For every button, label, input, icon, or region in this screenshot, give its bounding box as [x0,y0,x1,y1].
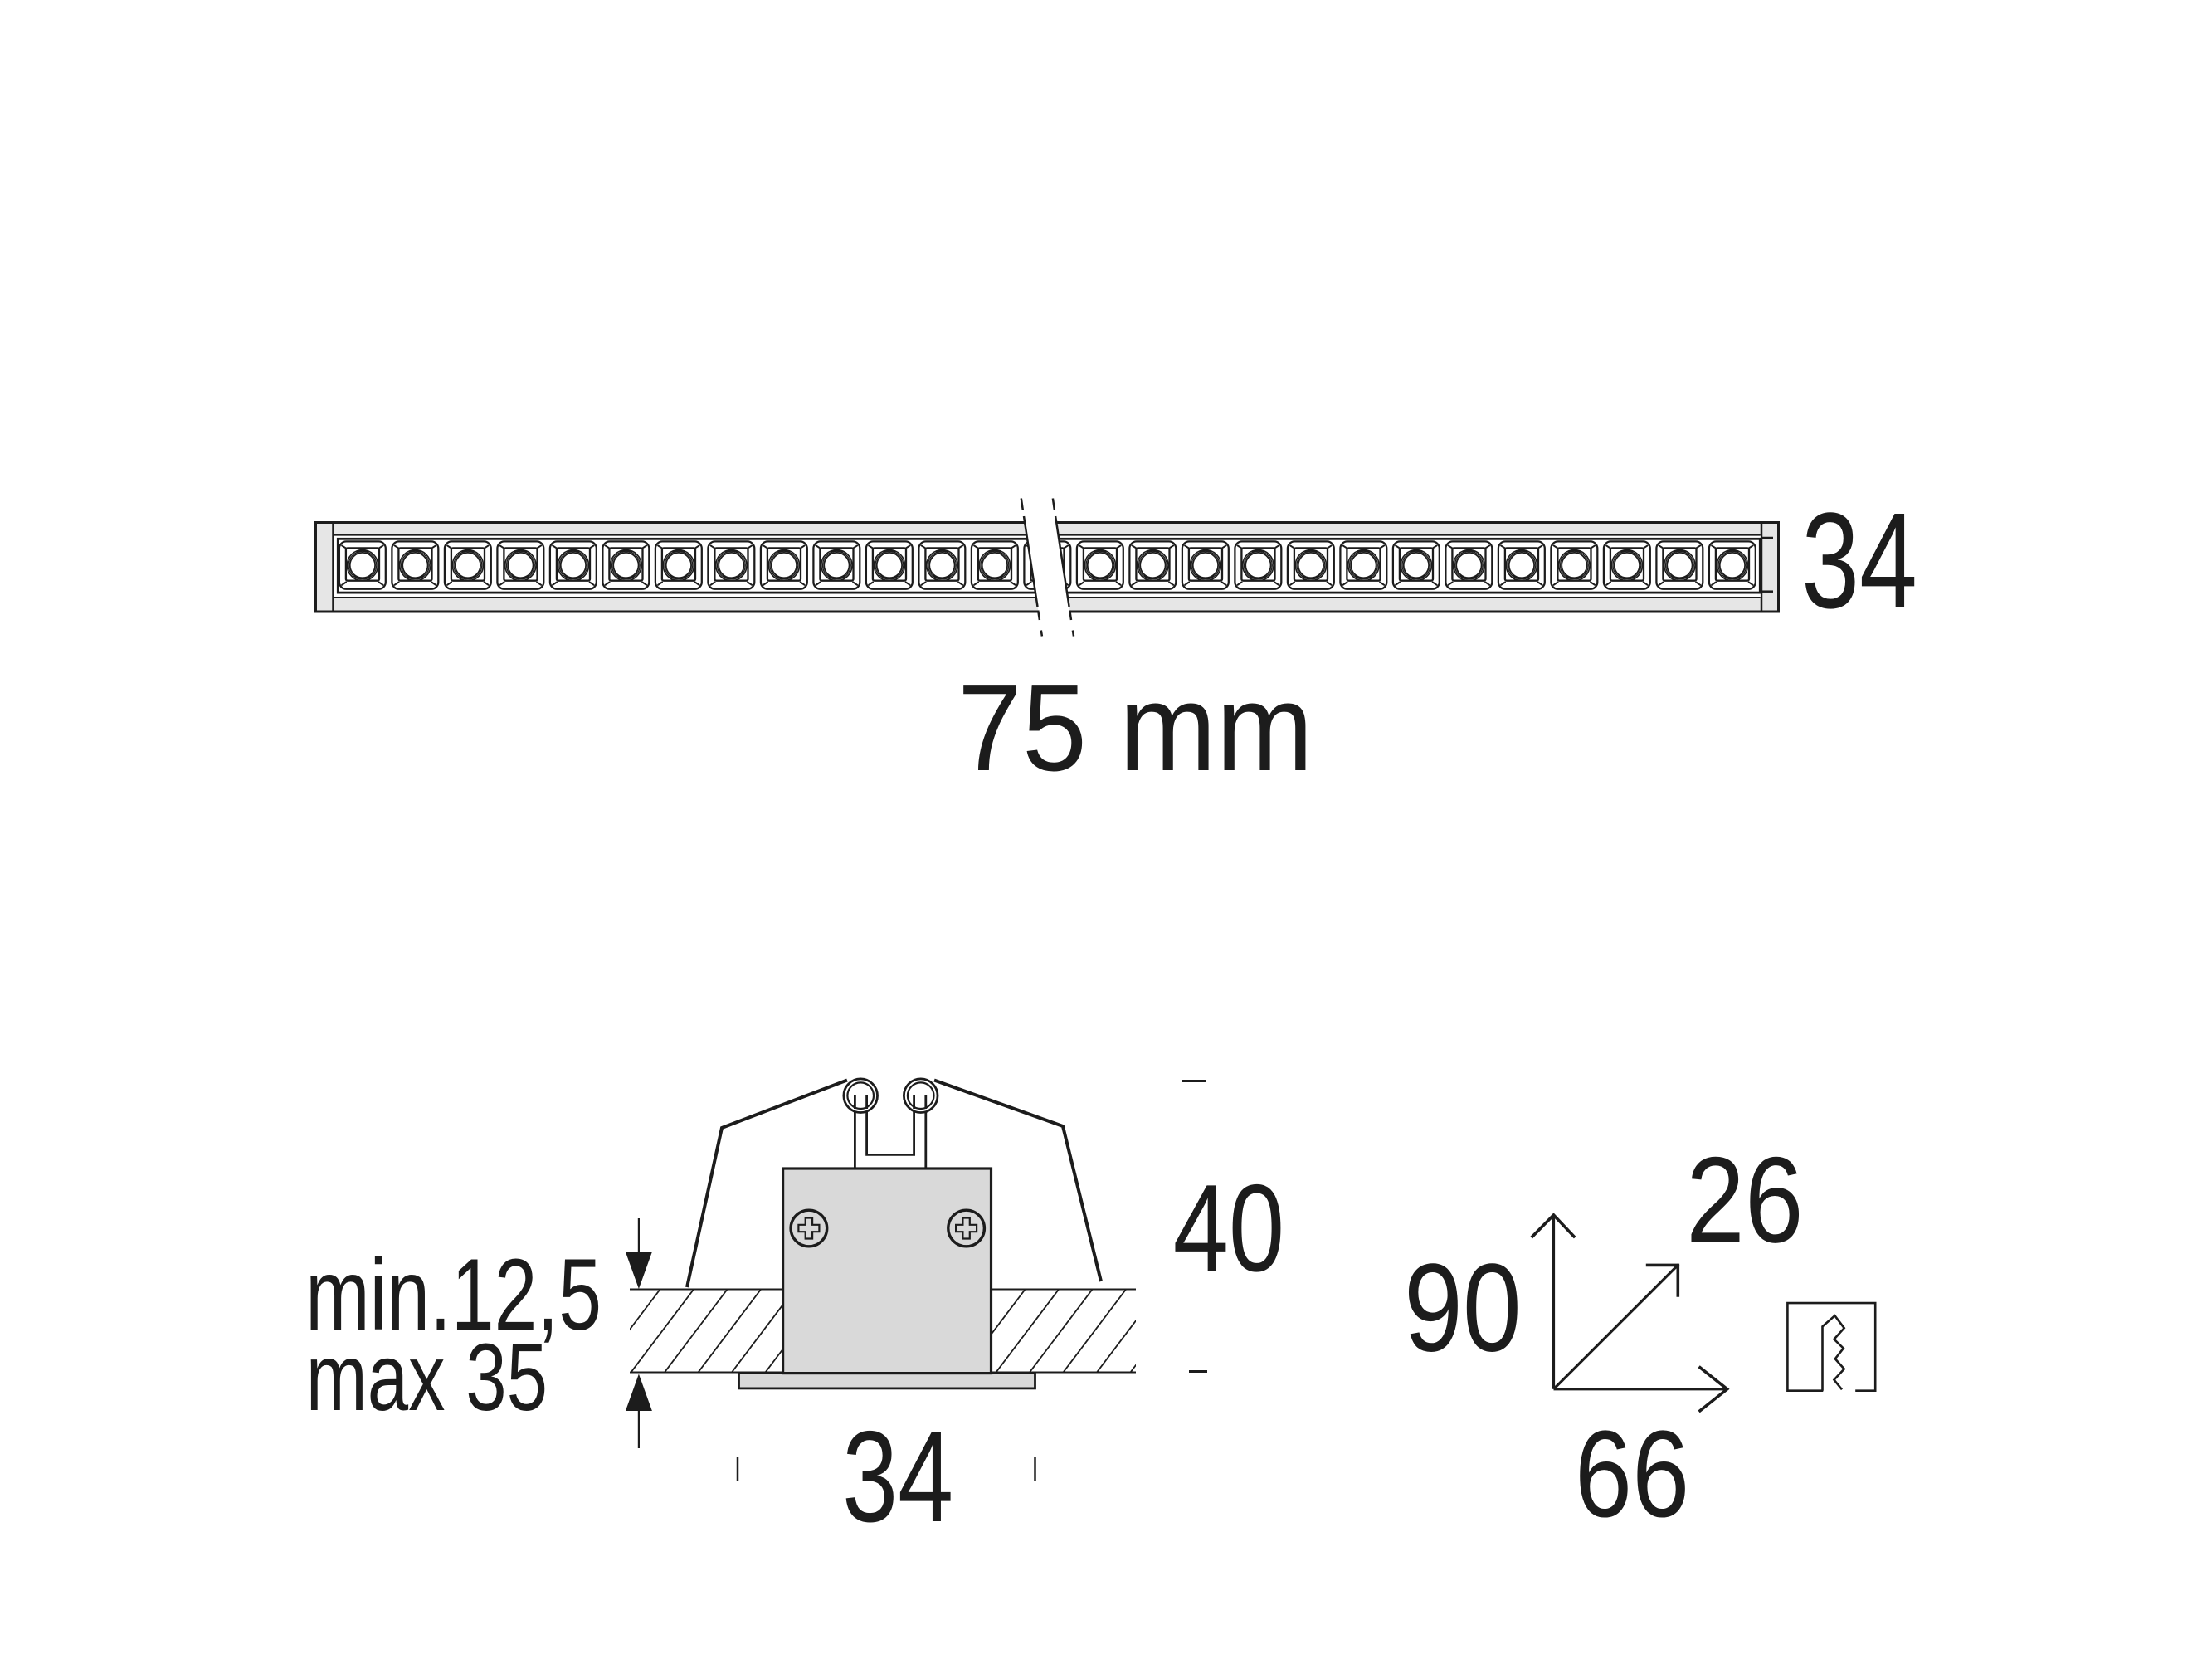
svg-text:40: 40 [1173,1159,1284,1297]
svg-text:26: 26 [1686,1133,1804,1269]
svg-text:34: 34 [1801,485,1917,637]
svg-text:34: 34 [842,1404,953,1549]
svg-text:75 mm: 75 mm [957,658,1313,797]
svg-text:max 35: max 35 [306,1324,548,1431]
svg-text:90: 90 [1404,1237,1522,1378]
svg-text:66: 66 [1575,1406,1689,1544]
